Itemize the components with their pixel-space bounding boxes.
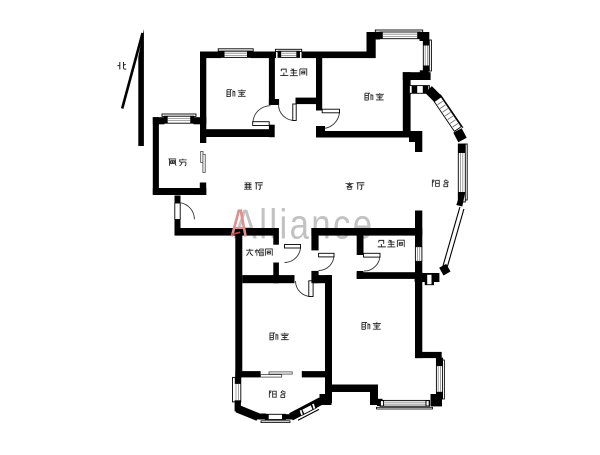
svg-text:Alliance: Alliance bbox=[234, 202, 375, 249]
